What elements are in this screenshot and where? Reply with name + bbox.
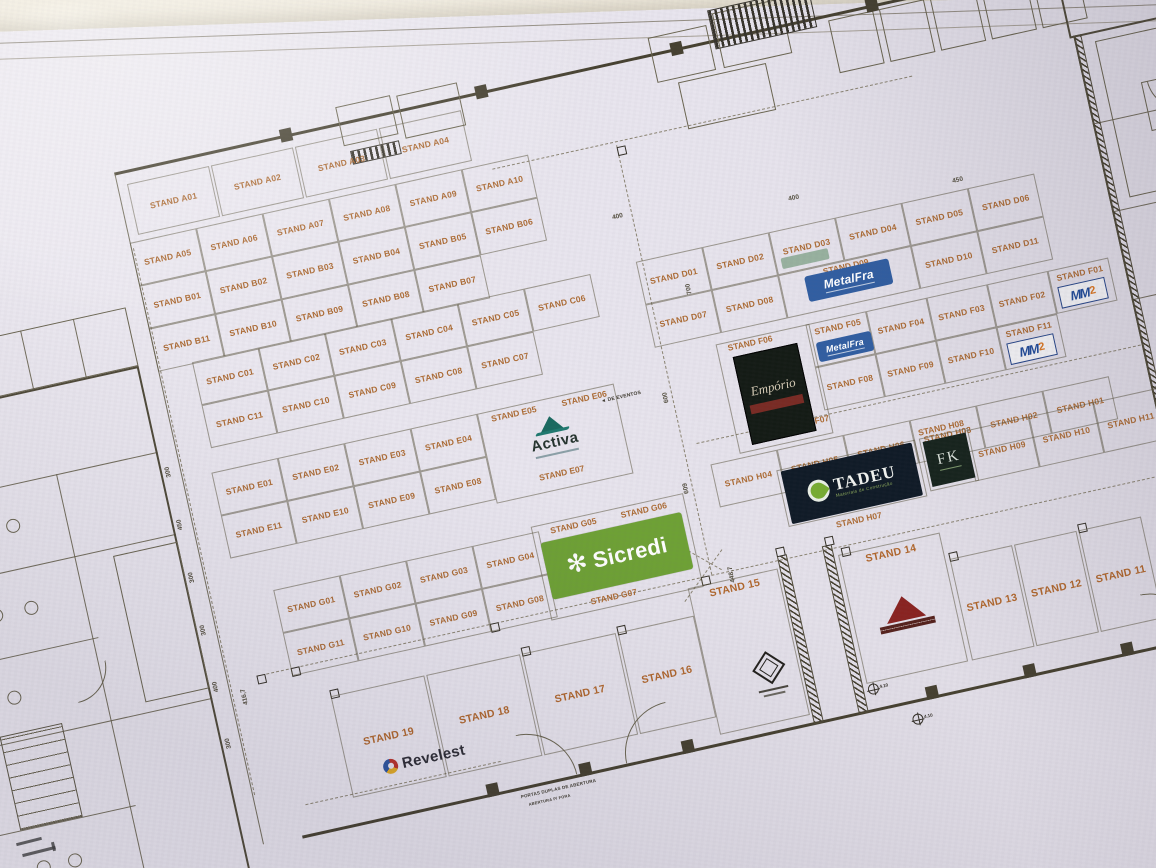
wall-pier <box>474 84 489 99</box>
stand-label: STAND C09 <box>348 380 397 400</box>
stand-label: STAND G10 <box>362 622 412 642</box>
stand-label: STAND C04 <box>404 322 453 342</box>
stand-label: STAND D06 <box>981 192 1030 212</box>
stand-cell: STAND A02 <box>211 147 304 216</box>
stand-label: STAND D04 <box>848 222 897 242</box>
stand-label: STAND E09 <box>367 490 416 510</box>
diamond-outline-icon <box>752 651 785 684</box>
stand-label: STAND F04 <box>877 316 926 336</box>
stand-label: STAND D05 <box>915 207 964 227</box>
mm2-numeral: 2 <box>1088 284 1097 297</box>
tadeu-leaf-icon <box>805 478 831 504</box>
metalfra-wordmark: MetalFra <box>825 337 865 357</box>
structural-column <box>256 674 267 685</box>
stand-label: STAND B08 <box>361 289 410 309</box>
stand-cell: STAND H04 <box>710 450 786 508</box>
stand-label: STAND B03 <box>285 260 334 280</box>
stand-label: STAND B11 <box>162 333 211 353</box>
stand-label: STAND C08 <box>414 365 463 385</box>
stand-label: STAND A08 <box>342 203 391 223</box>
stand-label: STAND H11 <box>1106 410 1155 430</box>
stand-cell: STAND A01 <box>127 166 220 235</box>
stand-label: STAND F08 <box>826 372 875 392</box>
stand-label: STAND B07 <box>428 274 477 294</box>
dimension-text: 300 <box>224 737 233 749</box>
stand-label: STAND D07 <box>659 309 708 329</box>
stand-label: STAND G02 <box>353 579 403 599</box>
stand-label: STAND E11 <box>235 520 284 540</box>
stand-label: STAND 16 <box>640 663 693 686</box>
color-wheel-icon <box>382 757 400 775</box>
sicredi-pinwheel-icon: ✻ <box>564 549 590 578</box>
dimension-text: 609 <box>681 482 690 494</box>
stand-label: STAND G11 <box>296 637 345 657</box>
stand-label: STAND A02 <box>233 172 282 192</box>
dimension-text: 300 <box>187 571 196 583</box>
stand-label: STAND H10 <box>1042 425 1091 445</box>
stand-label: STAND 19 <box>362 725 415 748</box>
stand-label: STAND D10 <box>924 250 973 270</box>
stand-cell: STAND A03 <box>295 129 388 198</box>
dimension-text: 450 <box>952 176 964 185</box>
stand-label: STAND H04 <box>724 468 773 488</box>
stand-label: STAND A05 <box>143 247 192 267</box>
mm2-numeral: 2 <box>1037 340 1046 353</box>
stand-label: STAND E08 <box>434 476 483 496</box>
dimension-text: 400 <box>788 194 800 203</box>
stand-label: STAND 17 <box>554 683 607 706</box>
stand-label: STAND A04 <box>401 135 450 155</box>
wall-pier <box>681 739 696 754</box>
stand-label: STAND F09 <box>886 359 935 379</box>
mm2-wordmark: MM <box>1018 341 1039 360</box>
stand-label: STAND C02 <box>272 352 321 372</box>
stand-label: STAND A06 <box>209 232 258 252</box>
room-outline <box>980 0 1037 39</box>
wall-pier <box>279 127 294 142</box>
stand-label: STAND G09 <box>429 608 479 628</box>
stand-label: STAND A09 <box>409 188 458 208</box>
dimension-text: 450 <box>175 519 184 531</box>
stand-label: STAND F03 <box>937 303 986 323</box>
floor-plan-drawing: STAND A01STAND A02STAND A03STAND A04STAN… <box>0 0 1156 868</box>
dimension-text: 400 <box>211 681 220 693</box>
dimension-text: 300 <box>199 624 208 636</box>
stand-label: STAND B09 <box>295 303 344 323</box>
stand-label: STAND 14 <box>864 542 917 565</box>
sicredi-wordmark: Sicredi <box>590 532 669 574</box>
dimension-text: 300 <box>164 466 173 478</box>
stand-label: STAND D11 <box>991 235 1040 255</box>
structural-column <box>775 547 786 558</box>
stand-label: STAND A07 <box>276 218 325 238</box>
wall-pier <box>1022 663 1037 678</box>
stand-label: STAND G03 <box>419 565 469 585</box>
stand-label: STAND C03 <box>338 337 387 357</box>
stand-label: STAND C01 <box>205 366 254 386</box>
wall-pier <box>485 782 500 797</box>
stand-label: STAND D08 <box>725 294 774 314</box>
wall-pier <box>925 685 940 700</box>
structural-column <box>824 536 835 547</box>
stand-label: STAND D02 <box>715 251 764 271</box>
stand-label: STAND A01 <box>149 190 198 210</box>
stand-label: STAND H09 <box>977 439 1026 459</box>
stand-label: STAND C05 <box>471 307 520 327</box>
fk-logo: FK <box>923 433 976 487</box>
room-outline <box>879 0 936 62</box>
stand-label: STAND F10 <box>947 345 996 365</box>
stand-label: STAND E04 <box>424 433 473 453</box>
stand-label: STAND B10 <box>228 318 277 338</box>
photo-layer: STAND A01STAND A02STAND A03STAND A04STAN… <box>0 0 1156 868</box>
stand-label: STAND C06 <box>537 293 586 313</box>
stand-label: STAND E10 <box>301 505 350 525</box>
dimension-text: 400 <box>612 212 624 221</box>
wall-pier <box>578 762 593 777</box>
stand-label: STAND E01 <box>225 477 274 497</box>
stand-label: STAND G01 <box>286 594 336 614</box>
stand-label: STAND G04 <box>485 550 535 570</box>
stand-label: STAND B05 <box>418 231 467 251</box>
stand-label: STAND B01 <box>152 290 201 310</box>
level-marker: 4.10 <box>911 713 924 726</box>
stand-label: STAND 13 <box>966 591 1019 614</box>
stand-label: STAND E03 <box>358 447 407 467</box>
level-marker-label: 4.10 <box>879 682 889 689</box>
stand-cell: STAND C06 <box>524 274 600 332</box>
stand-label: STAND C07 <box>480 350 529 370</box>
room-outline <box>828 11 885 74</box>
wall-pier <box>865 0 880 13</box>
level-marker-label: 4.10 <box>924 712 934 719</box>
room-outline <box>930 0 987 51</box>
stand-label: STAND B02 <box>219 275 268 295</box>
stand-label: STAND B04 <box>352 246 401 266</box>
wall-pier <box>669 41 684 56</box>
stand-label: STAND G08 <box>495 593 545 613</box>
structural-column <box>617 145 628 156</box>
tadeu-text-group: TADEUMateriais de Construção <box>832 463 899 498</box>
wall-pier <box>1120 642 1135 657</box>
stand-label: STAND A03 <box>317 153 366 173</box>
mm2-wordmark: MM <box>1069 284 1090 303</box>
diamond-logo-text-line <box>764 691 786 698</box>
stand-label: STAND E02 <box>291 462 340 482</box>
stand-label: STAND 12 <box>1030 577 1083 600</box>
stand-label: STAND 11 <box>1095 563 1147 586</box>
level-marker: 4.10 <box>867 682 880 695</box>
stand-label: STAND C10 <box>281 395 330 415</box>
dimension-text: 600 <box>661 391 670 403</box>
dimension-text: 416,7 <box>239 688 249 705</box>
stand-label: STAND A10 <box>475 173 524 193</box>
stand-label: STAND F02 <box>998 289 1047 309</box>
stand-label: STAND C11 <box>215 409 264 429</box>
stand-label: STAND B06 <box>484 216 533 236</box>
stand-label: STAND 18 <box>458 704 511 727</box>
floorplan-photo: Photograph of a printed exhibition floor… <box>0 0 1156 868</box>
